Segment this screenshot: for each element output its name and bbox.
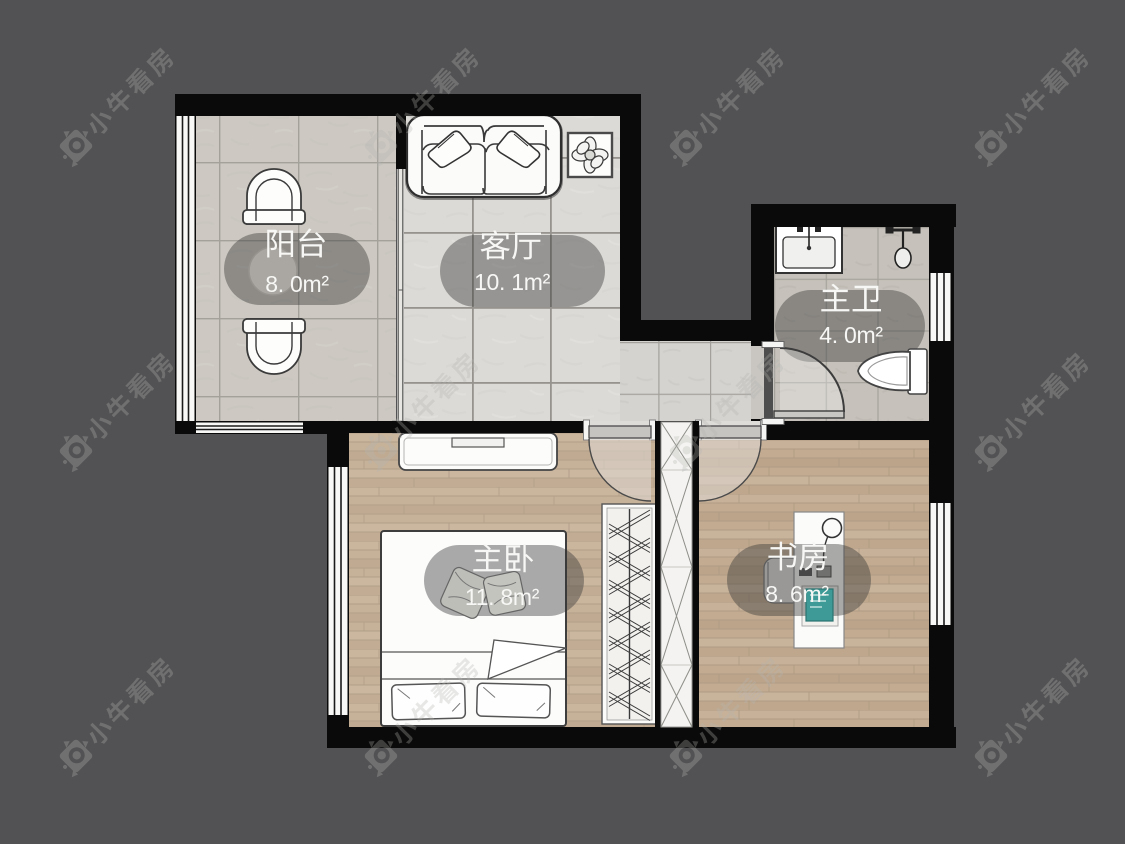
svg-text:4. 0m²: 4. 0m²: [819, 322, 883, 348]
svg-text:8. 6m²: 8. 6m²: [765, 581, 829, 607]
svg-text:10. 1m²: 10. 1m²: [474, 269, 551, 295]
svg-text:11. 8m²: 11. 8m²: [465, 584, 540, 610]
svg-text:8. 0m²: 8. 0m²: [265, 271, 329, 297]
